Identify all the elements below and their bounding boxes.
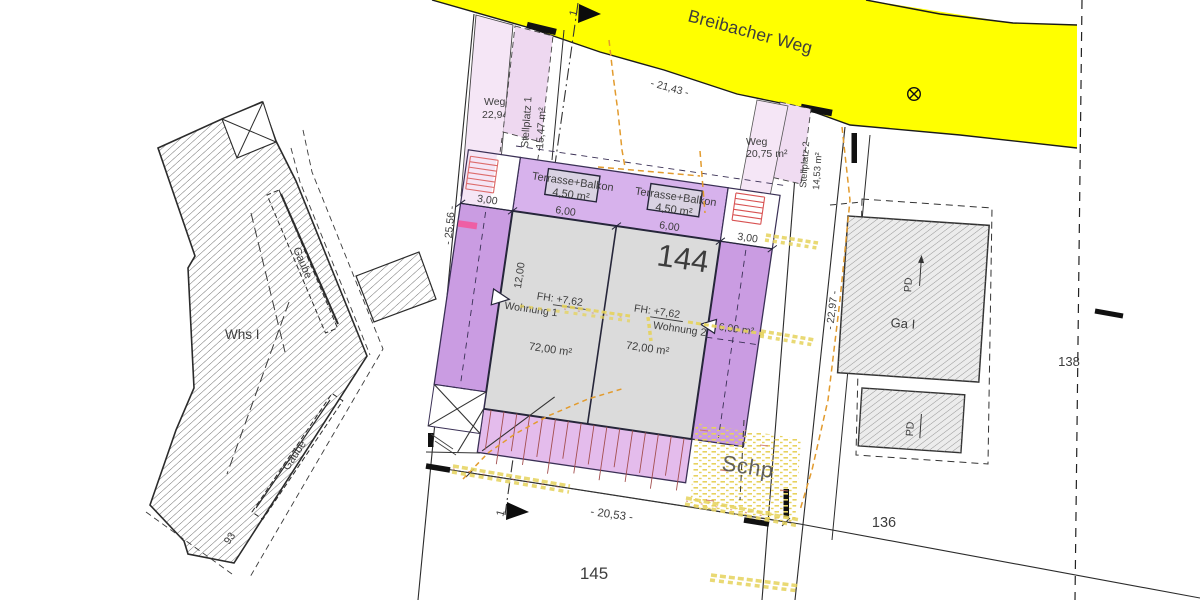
- svg-text:Whs I: Whs I: [225, 327, 260, 342]
- svg-text:144: 144: [655, 237, 711, 279]
- svg-text:Weg: Weg: [484, 96, 506, 108]
- svg-text:Weg: Weg: [746, 136, 768, 148]
- svg-text:20,75 m²: 20,75 m²: [746, 148, 788, 160]
- svg-text:145: 145: [580, 564, 608, 583]
- svg-text:PD: PD: [902, 277, 915, 293]
- svg-text:138: 138: [1058, 354, 1080, 369]
- svg-text:136: 136: [872, 515, 896, 531]
- svg-text:PD: PD: [904, 421, 917, 437]
- svg-text:Ga I: Ga I: [890, 315, 916, 332]
